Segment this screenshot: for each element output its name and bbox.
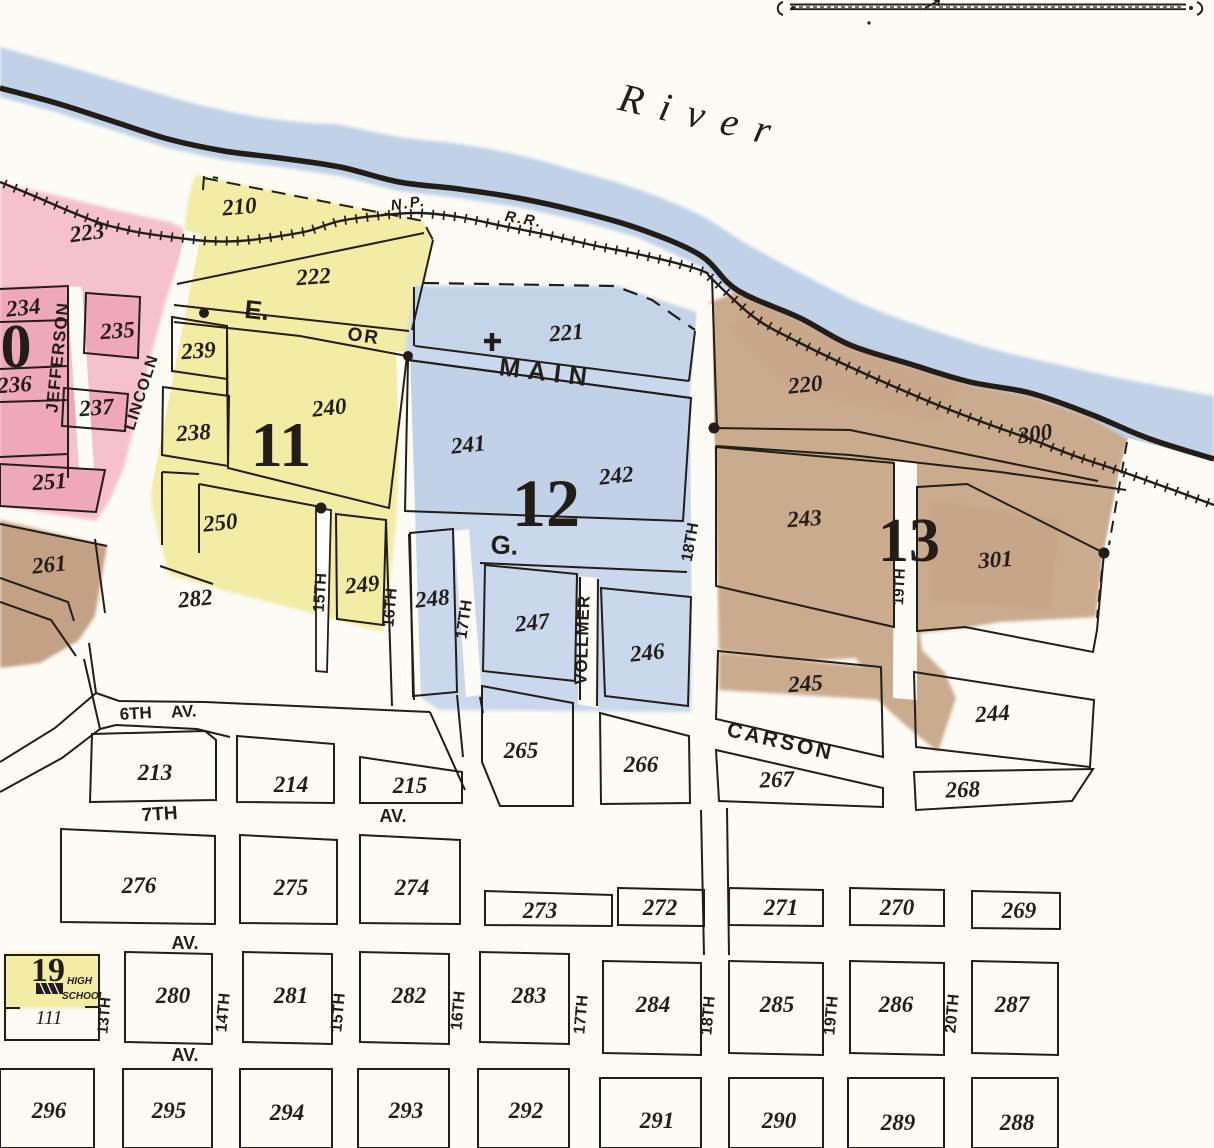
svg-text:269: 269: [1001, 898, 1037, 923]
svg-text:248: 248: [413, 584, 451, 613]
svg-text:250: 250: [201, 508, 239, 537]
svg-text:221: 221: [547, 319, 585, 347]
svg-text:15TH: 15TH: [328, 992, 348, 1032]
svg-text:AV.: AV.: [171, 933, 198, 953]
svg-text:293: 293: [388, 1098, 424, 1123]
svg-text:286: 286: [878, 992, 914, 1017]
svg-text:17TH: 17TH: [571, 994, 591, 1034]
svg-text:VOLLMER: VOLLMER: [571, 594, 593, 685]
svg-text:238: 238: [174, 419, 212, 446]
svg-text:AV.: AV.: [171, 1045, 198, 1065]
svg-text:268: 268: [944, 776, 981, 802]
svg-text:273: 273: [522, 898, 558, 923]
svg-text:237: 237: [77, 394, 116, 422]
svg-text:285: 285: [759, 992, 795, 1017]
svg-text:235: 235: [98, 317, 135, 344]
svg-text:111: 111: [35, 1007, 62, 1029]
svg-text:274: 274: [394, 875, 430, 900]
svg-text:241: 241: [449, 430, 487, 459]
svg-text:245: 245: [786, 670, 823, 697]
svg-text:292: 292: [508, 1098, 544, 1123]
svg-text:301: 301: [976, 546, 1013, 573]
svg-text:275: 275: [273, 875, 309, 900]
svg-text:300: 300: [1015, 419, 1054, 449]
svg-text:270: 270: [879, 895, 915, 920]
svg-text:18TH: 18TH: [698, 995, 718, 1035]
svg-text:16TH: 16TH: [448, 990, 468, 1030]
svg-text:223: 223: [67, 218, 106, 248]
svg-text:296: 296: [31, 1098, 67, 1123]
svg-text:271: 271: [763, 895, 799, 920]
svg-text:11: 11: [251, 409, 311, 480]
svg-text:284: 284: [635, 992, 671, 1017]
svg-text:282: 282: [176, 584, 214, 613]
svg-text:HIGH: HIGH: [67, 976, 93, 987]
svg-text:266: 266: [623, 752, 659, 777]
svg-text:243: 243: [785, 505, 822, 532]
svg-text:240: 240: [310, 393, 348, 422]
svg-text:282: 282: [391, 983, 427, 1008]
svg-text:19TH: 19TH: [821, 995, 841, 1035]
svg-text:290: 290: [761, 1108, 797, 1133]
svg-text:14TH: 14TH: [213, 992, 233, 1032]
svg-text:OR: OR: [346, 324, 381, 349]
svg-text:210: 210: [220, 193, 258, 221]
svg-text:291: 291: [639, 1108, 675, 1133]
svg-text:215: 215: [392, 773, 428, 798]
svg-text:244: 244: [973, 700, 1010, 727]
svg-text:247: 247: [513, 608, 552, 637]
svg-text:272: 272: [642, 895, 678, 920]
svg-text:265: 265: [503, 738, 539, 763]
svg-text:E.: E.: [243, 294, 271, 326]
svg-text:220: 220: [786, 370, 824, 399]
svg-text:222: 222: [294, 263, 331, 290]
svg-text:20TH: 20TH: [942, 993, 962, 1033]
svg-text:AV.: AV.: [170, 701, 196, 721]
svg-text:283: 283: [511, 983, 547, 1008]
svg-text:294: 294: [269, 1100, 305, 1125]
svg-text:12: 12: [512, 465, 580, 541]
svg-text:13TH: 13TH: [94, 997, 114, 1035]
svg-text:276: 276: [121, 873, 157, 898]
svg-text:280: 280: [155, 983, 191, 1008]
svg-text:236: 236: [0, 371, 33, 398]
svg-text:295: 295: [151, 1098, 187, 1123]
svg-text:19: 19: [31, 952, 65, 989]
svg-text:289: 289: [880, 1110, 916, 1135]
svg-text:213: 213: [137, 760, 173, 785]
svg-text:251: 251: [30, 468, 67, 495]
svg-text:288: 288: [999, 1110, 1035, 1135]
svg-text:242: 242: [597, 461, 635, 490]
svg-text:AV.: AV.: [379, 806, 406, 826]
svg-text:15TH: 15TH: [311, 573, 331, 613]
svg-text:239: 239: [179, 337, 217, 364]
svg-text:7TH: 7TH: [141, 803, 178, 826]
svg-text:287: 287: [994, 992, 1031, 1017]
svg-text:214: 214: [273, 772, 309, 797]
svg-text:249: 249: [343, 570, 381, 599]
svg-text:16TH: 16TH: [380, 587, 400, 627]
svg-text:13: 13: [878, 507, 940, 575]
svg-text:281: 281: [273, 983, 309, 1008]
svg-text:246: 246: [628, 638, 666, 667]
svg-text:261: 261: [30, 550, 68, 579]
svg-text:267: 267: [758, 766, 796, 792]
svg-text:6TH: 6TH: [119, 703, 152, 724]
